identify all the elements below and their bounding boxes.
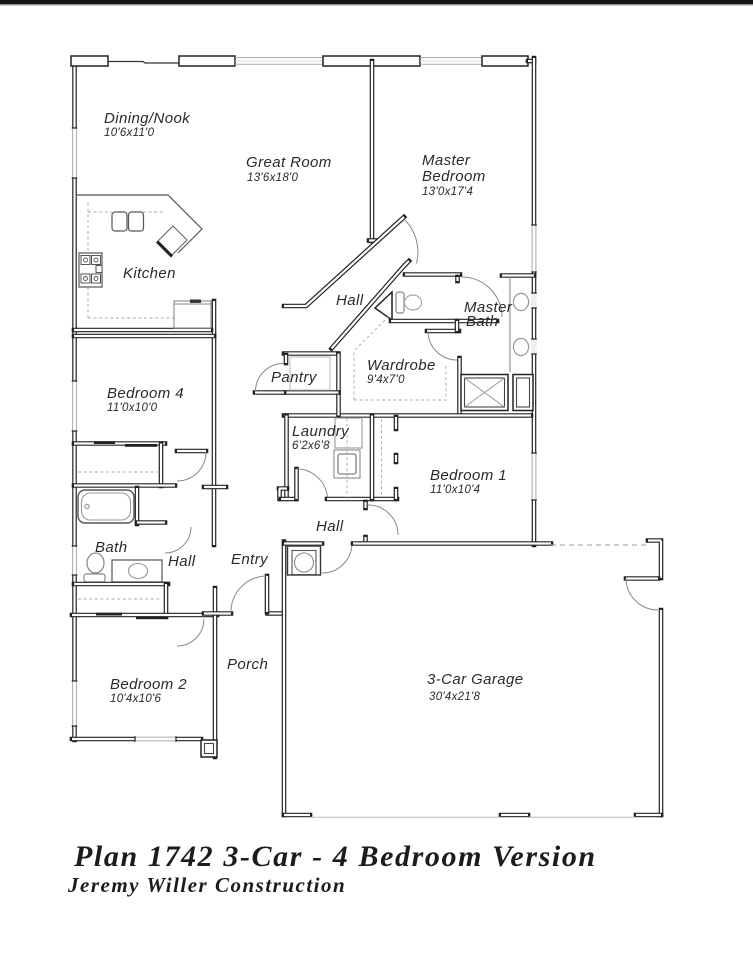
svg-text:Wardrobe: Wardrobe [367,357,436,374]
svg-text:9'4x7'0: 9'4x7'0 [367,374,405,386]
svg-text:Bath: Bath [466,313,498,330]
svg-text:11'0x10'0: 11'0x10'0 [107,402,158,414]
svg-text:Bedroom 2: Bedroom 2 [110,676,187,693]
svg-text:Master: Master [422,152,471,169]
svg-text:Porch: Porch [227,656,268,673]
svg-text:Dining/Nook: Dining/Nook [104,110,191,127]
svg-text:Pantry: Pantry [271,369,318,386]
svg-text:13'0x17'4: 13'0x17'4 [422,186,473,198]
svg-text:10'4x10'6: 10'4x10'6 [110,693,162,705]
svg-text:Hall: Hall [168,553,196,570]
svg-text:Bath: Bath [95,539,127,556]
svg-text:10'6x11'0: 10'6x11'0 [104,127,155,139]
svg-text:Laundry: Laundry [292,423,350,440]
svg-text:Great Room: Great Room [246,154,332,171]
svg-text:13'6x18'0: 13'6x18'0 [247,172,299,184]
svg-text:Bedroom: Bedroom [422,168,486,185]
svg-text:Kitchen: Kitchen [123,265,176,282]
svg-text:30'4x21'8: 30'4x21'8 [429,691,481,703]
svg-text:3-Car Garage: 3-Car Garage [427,671,524,688]
svg-text:Hall: Hall [336,292,364,309]
svg-text:Jeremy Willer Construction: Jeremy Willer Construction [67,873,346,897]
svg-text:11'0x10'4: 11'0x10'4 [430,484,480,496]
svg-text:Hall: Hall [316,518,344,535]
svg-text:6'2x6'8: 6'2x6'8 [292,440,330,452]
svg-text:Bedroom 4: Bedroom 4 [107,385,184,402]
svg-text:Bedroom 1: Bedroom 1 [430,467,507,484]
svg-text:Entry: Entry [231,551,269,568]
svg-text:Plan 1742 3-Car - 4 Bedroom Ve: Plan 1742 3-Car - 4 Bedroom Version [73,840,597,873]
